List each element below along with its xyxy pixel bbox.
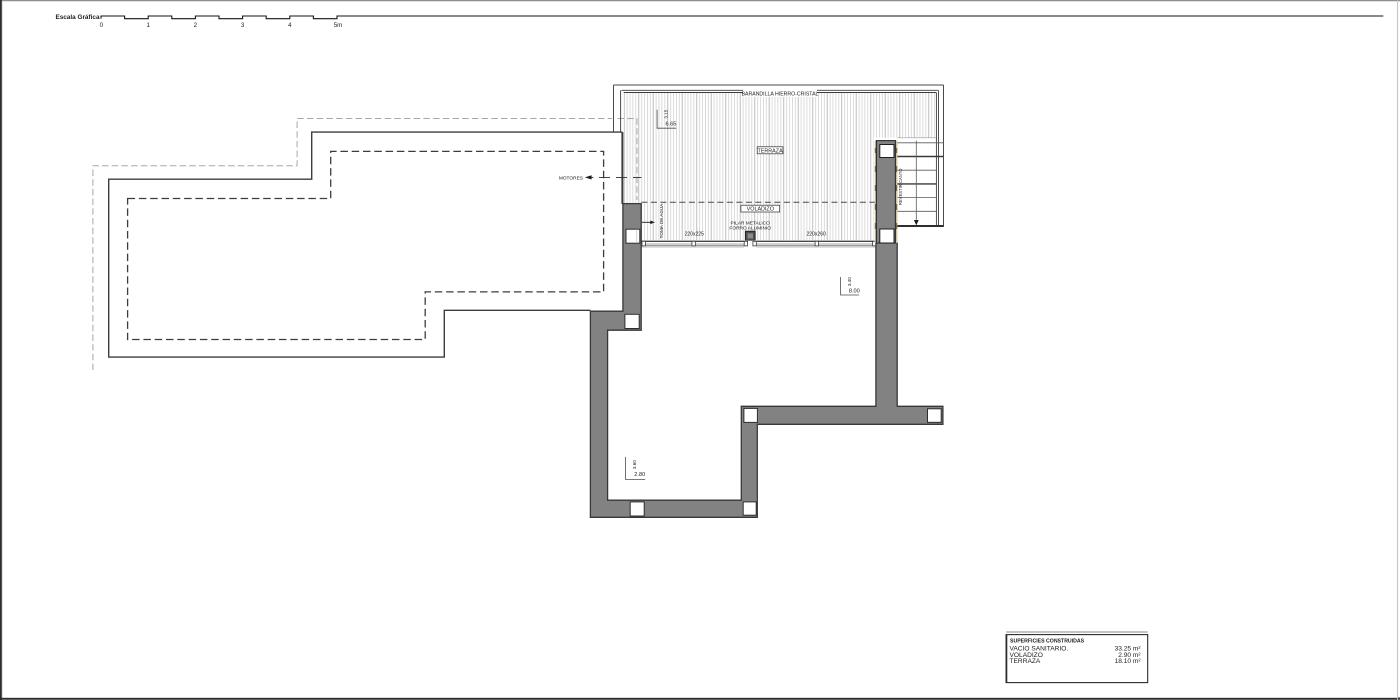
svg-text:3.40: 3.40 <box>847 277 852 286</box>
svg-text:2: 2 <box>194 22 198 29</box>
svg-text:REVESTIR CANTO: REVESTIR CANTO <box>898 168 903 205</box>
svg-text:1: 1 <box>146 22 150 29</box>
svg-text:5m: 5m <box>334 22 343 29</box>
svg-text:3.15: 3.15 <box>664 109 669 118</box>
svg-text:2.80: 2.80 <box>634 472 645 478</box>
svg-text:18.10 m²: 18.10 m² <box>1115 658 1142 665</box>
svg-text:VOLADIZO: VOLADIZO <box>747 207 774 213</box>
svg-text:6.65: 6.65 <box>666 121 677 127</box>
svg-text:Escala Gráfica: Escala Gráfica <box>55 14 100 21</box>
svg-text:BARANDILLA HIERRO-CRISTAL: BARANDILLA HIERRO-CRISTAL <box>742 92 819 98</box>
svg-text:220x225: 220x225 <box>685 232 704 238</box>
svg-text:3: 3 <box>241 22 245 29</box>
svg-text:0: 0 <box>100 22 104 29</box>
svg-text:TERRAZA: TERRAZA <box>1010 658 1041 665</box>
svg-text:SUPERFICIES CONSTRUIDAS: SUPERFICIES CONSTRUIDAS <box>1010 639 1085 645</box>
svg-text:PILAR METALICO: PILAR METALICO <box>731 220 771 226</box>
svg-text:TOMA DE AGUA: TOMA DE AGUA <box>659 203 664 239</box>
svg-text:TERRAZA: TERRAZA <box>758 149 784 155</box>
svg-text:220x260: 220x260 <box>807 232 826 238</box>
svg-text:MOTORES: MOTORES <box>559 175 583 181</box>
svg-text:4: 4 <box>288 22 292 29</box>
svg-text:3.60: 3.60 <box>632 460 637 469</box>
svg-text:8.00: 8.00 <box>849 288 860 294</box>
